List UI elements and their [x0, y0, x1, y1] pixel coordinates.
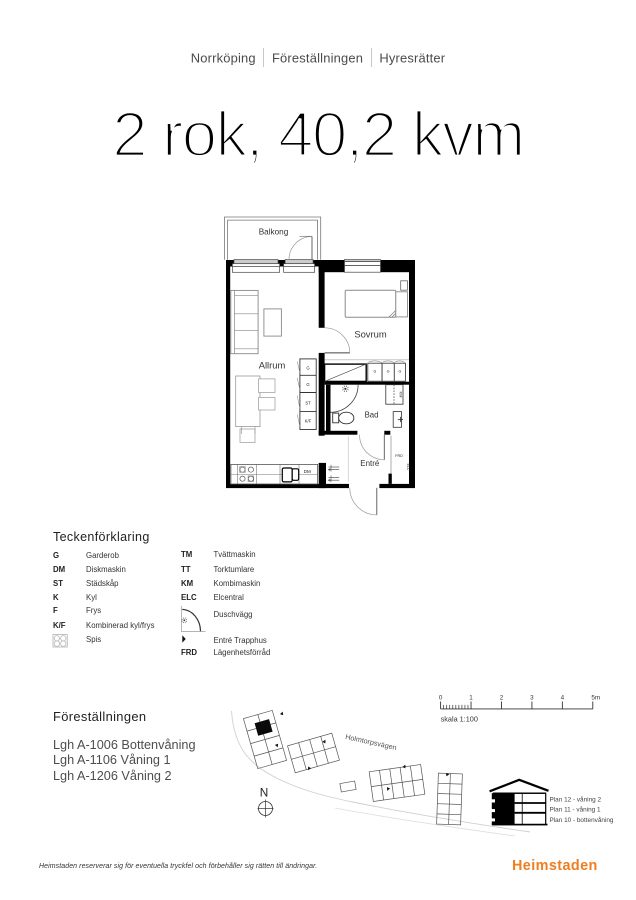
svg-text:Plan 12 - våning 2: Plan 12 - våning 2	[550, 796, 602, 804]
svg-text:0: 0	[439, 695, 443, 702]
svg-text:Plan 11 - våning 1: Plan 11 - våning 1	[550, 805, 601, 813]
svg-text:G: G	[306, 366, 309, 371]
svg-text:Sovrum: Sovrum	[354, 328, 386, 339]
svg-text:K/F: K/F	[305, 419, 312, 424]
svg-text:skala 1:100: skala 1:100	[441, 715, 478, 724]
svg-text:ELC: ELC	[406, 464, 410, 471]
svg-text:G: G	[306, 382, 309, 387]
svg-text:4: 4	[561, 695, 565, 702]
svg-text:1: 1	[469, 695, 473, 702]
svg-text:G: G	[387, 369, 390, 373]
svg-text:KM: KM	[398, 392, 403, 398]
svg-text:G: G	[398, 369, 401, 373]
svg-text:3: 3	[530, 695, 534, 702]
svg-text:Entré: Entré	[360, 459, 380, 468]
svg-text:Holmtorpsvägen: Holmtorpsvägen	[345, 732, 398, 752]
svg-text:5m: 5m	[591, 695, 600, 702]
svg-text:ST: ST	[305, 401, 311, 406]
svg-text:G: G	[374, 369, 377, 373]
svg-text:Balkong: Balkong	[259, 228, 289, 237]
svg-text:Plan 10 - bottenvåning: Plan 10 - bottenvåning	[550, 816, 614, 824]
svg-text:Bad: Bad	[365, 411, 379, 420]
svg-text:DM: DM	[304, 469, 311, 474]
svg-text:Allrum: Allrum	[259, 359, 286, 370]
svg-text:N: N	[260, 786, 269, 800]
svg-text:2: 2	[500, 695, 504, 702]
svg-text:FRD: FRD	[395, 454, 403, 458]
